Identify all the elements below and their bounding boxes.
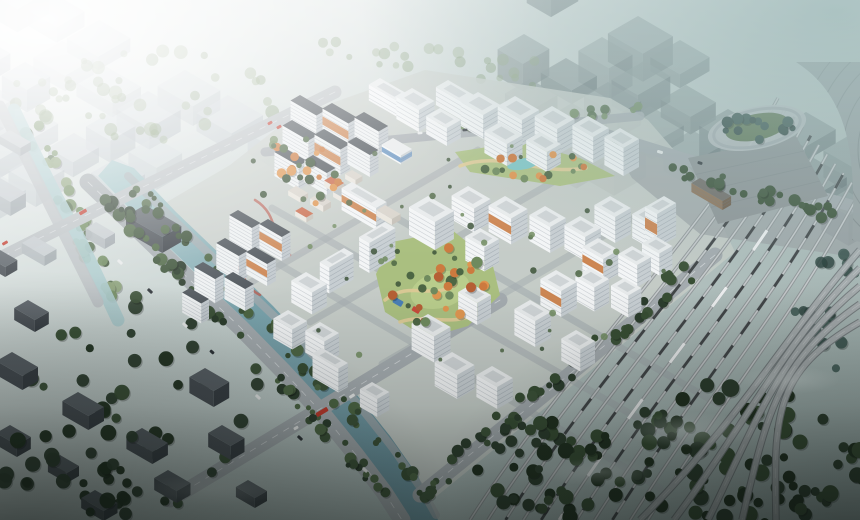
scene-svg bbox=[0, 0, 860, 520]
atmosphere bbox=[0, 0, 860, 520]
aerial-masterplan-render bbox=[0, 0, 860, 520]
